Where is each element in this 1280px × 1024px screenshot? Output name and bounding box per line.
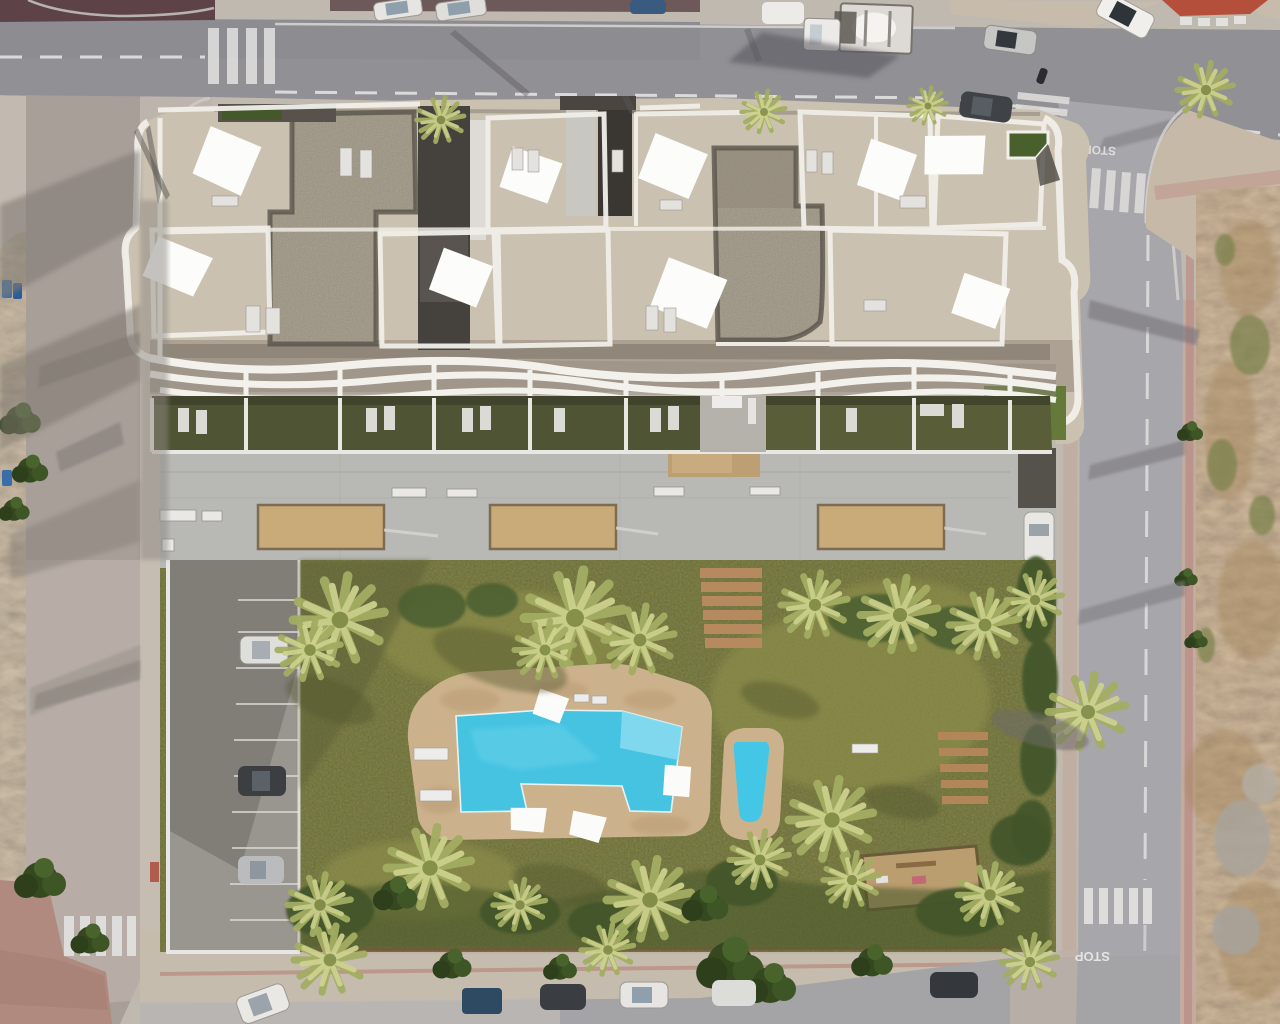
svg-text:STOP: STOP bbox=[1075, 949, 1110, 964]
